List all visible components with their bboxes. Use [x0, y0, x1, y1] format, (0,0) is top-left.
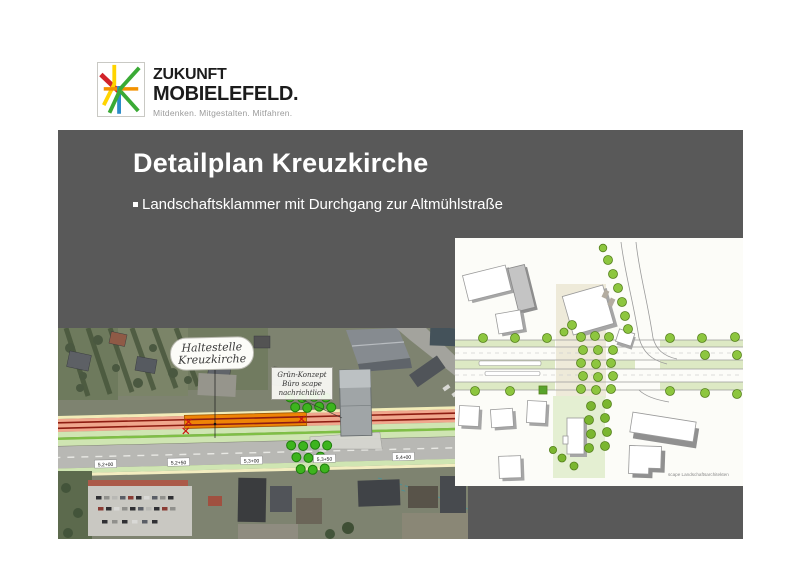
aerial-photo-svg: 5,2+00 5,2+50 5,3+00 5,3+50 5,4+00: [58, 328, 468, 539]
plan-credit: scape Landschaftsarchitekten: [668, 472, 729, 477]
landscape-plan-drawing: scape Landschaftsarchitekten: [455, 238, 743, 486]
brand-text: ZUKUNFT MOBIELEFELD. Mitdenken. Mitgesta…: [153, 62, 298, 118]
bullet-text: Landschaftsklammer mit Durchgang zur Alt…: [142, 196, 503, 213]
bullet-marker: [133, 202, 138, 207]
chainage-label: 5,3+00: [244, 458, 260, 464]
bullet-item: Landschaftsklammer mit Durchgang zur Alt…: [133, 196, 503, 213]
plan-sketch-svg: scape Landschaftsarchitekten: [455, 238, 743, 486]
content-panel: Detailplan Kreuzkirche Landschaftsklamme…: [58, 130, 743, 539]
brand-name-line1: ZUKUNFT: [153, 67, 298, 83]
chainage-label: 5,4+00: [396, 455, 412, 461]
logo-network-icon: [98, 63, 144, 116]
brand-logo: ZUKUNFT MOBIELEFELD. Mitdenken. Mitgesta…: [97, 62, 298, 118]
chainage-label: 5,2+00: [98, 462, 114, 468]
platform-bar: [479, 361, 541, 366]
note-line1: Grün-Konzept: [272, 371, 332, 380]
note-line2: Büro scape: [272, 380, 332, 389]
tram-platform-section: [184, 412, 306, 428]
slide-canvas: ZUKUNFT MOBIELEFELD. Mitdenken. Mitgesta…: [0, 0, 800, 566]
zukunft-mobielefeld-logo-icon: [97, 62, 145, 117]
brand-name-line2: MOBIELEFELD.: [153, 84, 298, 104]
note-line3: nachrichtlich: [272, 389, 332, 398]
chainage-label: 5,3+50: [317, 457, 333, 463]
aerial-map: 5,2+00 5,2+50 5,3+00 5,3+50 5,4+00: [58, 328, 468, 539]
slide-title: Detailplan Kreuzkirche: [133, 148, 429, 179]
platform-bar: [485, 372, 540, 376]
brand-tagline: Mitdenken. Mitgestalten. Mitfahren.: [153, 108, 298, 118]
chainage-label: 5,2+50: [171, 460, 187, 466]
green-concept-note: Grün-Konzept Büro scape nachrichtlich: [271, 367, 333, 400]
stop-label-bubble: Haltestelle Kreuzkirche: [170, 336, 255, 371]
stop-label-line2: Kreuzkirche: [171, 352, 253, 366]
